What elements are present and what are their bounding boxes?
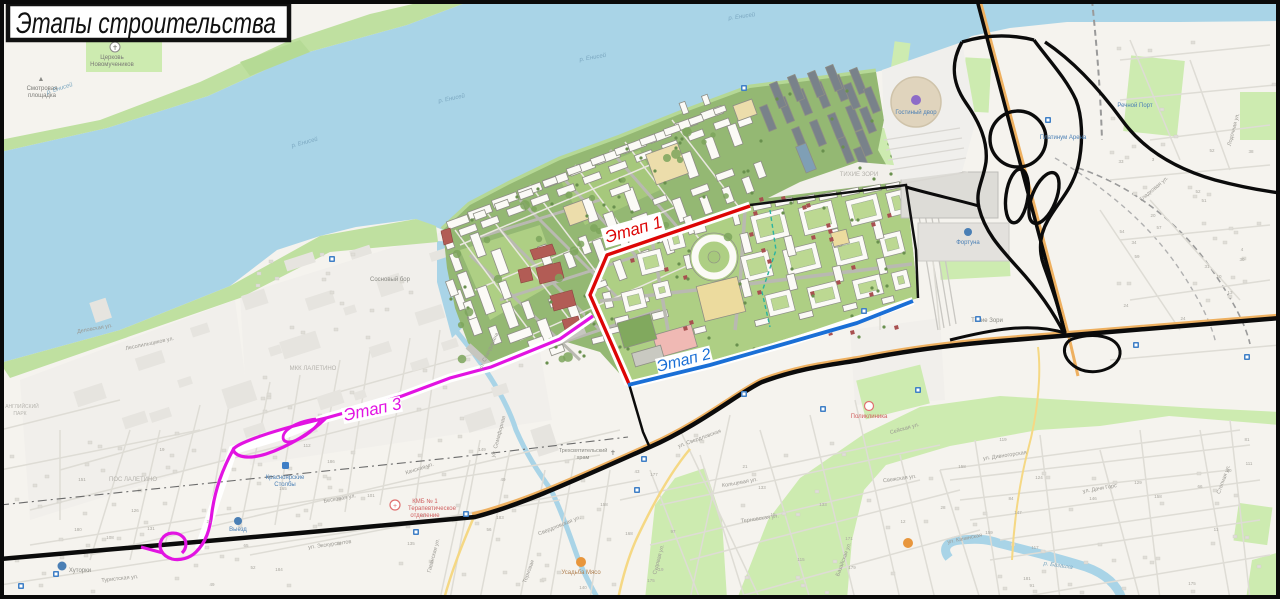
svg-text:✝: ✝ bbox=[610, 449, 616, 457]
svg-text:84: 84 bbox=[1008, 496, 1014, 501]
svg-text:ТИХИЕ ЗОРИ: ТИХИЕ ЗОРИ bbox=[840, 172, 879, 178]
svg-text:отделение: отделение bbox=[410, 513, 440, 519]
svg-text:13: 13 bbox=[1227, 290, 1233, 295]
svg-text:101: 101 bbox=[367, 493, 375, 498]
svg-text:20: 20 bbox=[1150, 213, 1156, 218]
svg-text:66: 66 bbox=[1197, 484, 1203, 489]
svg-text:81: 81 bbox=[1244, 437, 1250, 442]
svg-text:Трехсвятительский: Трехсвятительский bbox=[559, 447, 608, 454]
svg-text:Терапевтическое: Терапевтическое bbox=[408, 506, 457, 512]
svg-text:ПОС ЛАЛЕТИНО: ПОС ЛАЛЕТИНО bbox=[109, 477, 157, 483]
svg-text:АНГЛИЙСКИЙ: АНГЛИЙСКИЙ bbox=[5, 402, 39, 410]
svg-text:24: 24 bbox=[1123, 303, 1129, 308]
svg-text:151: 151 bbox=[78, 477, 86, 482]
svg-text:Красноярские: Красноярские bbox=[266, 475, 305, 481]
svg-text:175: 175 bbox=[647, 578, 655, 583]
svg-text:33: 33 bbox=[1118, 159, 1124, 164]
svg-text:146: 146 bbox=[1089, 496, 1097, 501]
svg-text:129: 129 bbox=[1134, 480, 1142, 485]
svg-text:24: 24 bbox=[1180, 316, 1186, 321]
svg-text:31: 31 bbox=[1204, 264, 1210, 269]
svg-text:165: 165 bbox=[279, 486, 287, 491]
svg-text:Гостиный двор: Гостиный двор bbox=[895, 109, 937, 116]
svg-text:38: 38 bbox=[1248, 149, 1254, 154]
svg-text:59: 59 bbox=[1134, 254, 1140, 259]
svg-text:Поликлиника: Поликлиника bbox=[851, 414, 888, 420]
svg-text:183: 183 bbox=[496, 515, 504, 520]
svg-text:МКК ЛАЛЕТИНО: МКК ЛАЛЕТИНО bbox=[290, 366, 337, 372]
svg-text:181: 181 bbox=[1023, 576, 1031, 581]
svg-text:180: 180 bbox=[74, 527, 82, 532]
svg-text:133: 133 bbox=[758, 485, 766, 490]
svg-text:30: 30 bbox=[1239, 257, 1245, 262]
svg-text:11: 11 bbox=[1214, 527, 1219, 532]
svg-text:158: 158 bbox=[600, 502, 608, 507]
svg-text:49: 49 bbox=[500, 477, 506, 482]
svg-text:140: 140 bbox=[579, 585, 587, 590]
svg-text:Новомучеников: Новомучеников bbox=[90, 62, 134, 68]
svg-text:51: 51 bbox=[1201, 198, 1207, 203]
svg-text:храм: храм bbox=[577, 455, 590, 461]
svg-text:65: 65 bbox=[243, 543, 249, 548]
svg-text:52: 52 bbox=[250, 565, 256, 570]
svg-text:Усадьба Мясо: Усадьба Мясо bbox=[561, 570, 601, 576]
svg-text:133: 133 bbox=[819, 502, 827, 507]
svg-text:Выезд: Выезд bbox=[229, 527, 247, 533]
svg-text:21: 21 bbox=[206, 519, 212, 524]
svg-text:91: 91 bbox=[1029, 583, 1035, 588]
svg-text:Платинум Арена: Платинум Арена bbox=[1040, 135, 1087, 141]
svg-text:168: 168 bbox=[625, 531, 633, 536]
svg-text:149: 149 bbox=[478, 447, 486, 452]
svg-text:Речной Порт: Речной Порт bbox=[1117, 102, 1153, 109]
svg-text:135: 135 bbox=[407, 541, 415, 546]
svg-text:119: 119 bbox=[999, 437, 1007, 442]
svg-text:117: 117 bbox=[1031, 545, 1039, 550]
svg-text:28: 28 bbox=[940, 505, 946, 510]
svg-text:Фортуна: Фортуна bbox=[956, 240, 980, 246]
svg-text:126: 126 bbox=[131, 508, 139, 513]
svg-text:43: 43 bbox=[634, 469, 640, 474]
svg-text:111: 111 bbox=[1246, 461, 1253, 466]
svg-text:175: 175 bbox=[1188, 581, 1196, 586]
svg-text:57: 57 bbox=[1156, 225, 1162, 230]
svg-text:Этапы строительства: Этапы строительства bbox=[16, 7, 276, 40]
svg-text:147: 147 bbox=[1014, 510, 1022, 515]
svg-text:Сосновый бор: Сосновый бор bbox=[370, 276, 411, 283]
svg-text:56: 56 bbox=[486, 527, 492, 532]
svg-text:159: 159 bbox=[985, 530, 993, 535]
svg-text:52: 52 bbox=[1209, 148, 1215, 153]
svg-text:90: 90 bbox=[1226, 468, 1232, 473]
svg-text:112: 112 bbox=[303, 443, 311, 448]
svg-text:184: 184 bbox=[275, 567, 283, 572]
svg-text:108: 108 bbox=[106, 535, 114, 540]
svg-text:49: 49 bbox=[209, 582, 215, 587]
svg-text:ПАРК: ПАРК bbox=[13, 411, 26, 417]
svg-text:КМБ № 1: КМБ № 1 bbox=[412, 498, 438, 505]
svg-text:19: 19 bbox=[159, 447, 165, 452]
svg-text:✝: ✝ bbox=[112, 44, 118, 52]
svg-text:19: 19 bbox=[658, 567, 664, 572]
svg-text:34: 34 bbox=[1131, 240, 1137, 245]
svg-text:54: 54 bbox=[1119, 229, 1125, 234]
svg-text:Хуторки: Хуторки bbox=[69, 568, 91, 574]
svg-text:171: 171 bbox=[845, 536, 853, 541]
svg-text:▲: ▲ bbox=[38, 76, 45, 83]
svg-text:179: 179 bbox=[848, 565, 856, 570]
svg-text:115: 115 bbox=[797, 557, 805, 562]
svg-text:12: 12 bbox=[900, 519, 906, 524]
svg-text:21: 21 bbox=[742, 464, 748, 469]
svg-text:158: 158 bbox=[1154, 494, 1162, 499]
svg-text:131: 131 bbox=[147, 526, 155, 531]
svg-text:Церковь: Церковь bbox=[100, 55, 123, 61]
svg-text:124: 124 bbox=[1035, 475, 1043, 480]
svg-text:158: 158 bbox=[958, 464, 966, 469]
svg-text:+: + bbox=[393, 503, 397, 510]
svg-text:186: 186 bbox=[327, 459, 335, 464]
svg-text:10: 10 bbox=[1216, 274, 1222, 279]
svg-text:177: 177 bbox=[650, 472, 658, 477]
svg-text:15: 15 bbox=[770, 512, 776, 517]
svg-text:52: 52 bbox=[1195, 189, 1201, 194]
svg-text:97: 97 bbox=[670, 529, 676, 534]
